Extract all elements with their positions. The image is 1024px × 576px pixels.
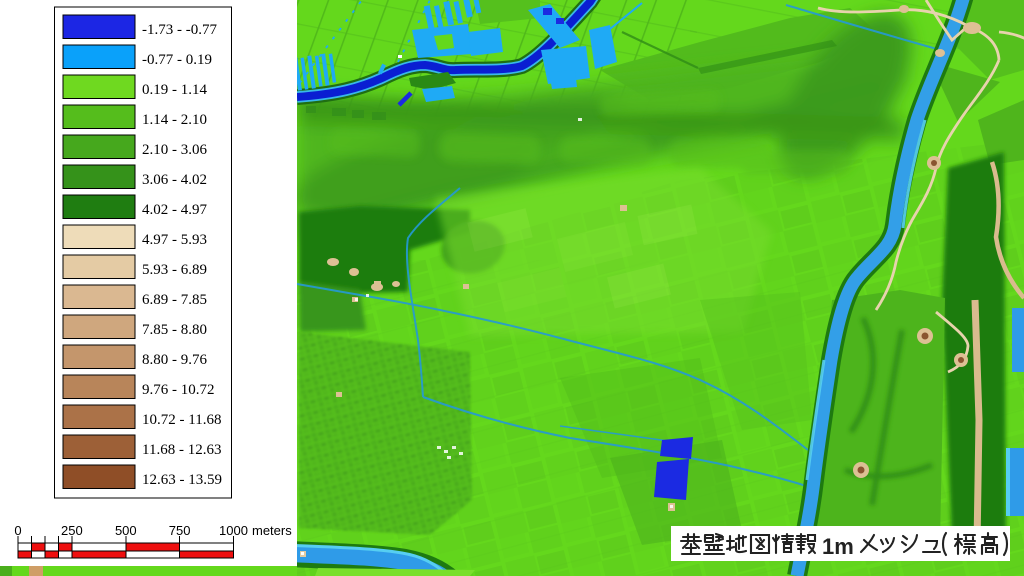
svg-text:8.80 - 9.76: 8.80 - 9.76 — [142, 352, 207, 368]
svg-text:4.97 - 5.93: 4.97 - 5.93 — [142, 232, 207, 248]
svg-text:5.93 - 6.89: 5.93 - 6.89 — [142, 262, 207, 278]
svg-text:3.06 - 4.02: 3.06 - 4.02 — [142, 172, 207, 188]
svg-text:-1.73 - -0.77: -1.73 - -0.77 — [142, 22, 217, 38]
svg-text:1m: 1m — [822, 534, 854, 559]
svg-text:12.63 - 13.59: 12.63 - 13.59 — [142, 472, 222, 488]
svg-text:0: 0 — [14, 523, 21, 538]
svg-text:250: 250 — [61, 523, 83, 538]
svg-text:500: 500 — [115, 523, 137, 538]
svg-text:10.72 - 11.68: 10.72 - 11.68 — [142, 412, 221, 428]
svg-text:1000: 1000 — [219, 523, 248, 538]
svg-text:4.02 - 4.97: 4.02 - 4.97 — [142, 202, 207, 218]
svg-text:9.76 - 10.72: 9.76 - 10.72 — [142, 382, 215, 398]
svg-text:2.10 - 3.06: 2.10 - 3.06 — [142, 142, 207, 158]
svg-text:6.89 - 7.85: 6.89 - 7.85 — [142, 292, 207, 308]
svg-text:7.85 - 8.80: 7.85 - 8.80 — [142, 322, 207, 338]
svg-text:0.19 - 1.14: 0.19 - 1.14 — [142, 82, 207, 98]
svg-text:750: 750 — [169, 523, 191, 538]
svg-text:1.14 - 2.10: 1.14 - 2.10 — [142, 112, 207, 128]
svg-text:-0.77 - 0.19: -0.77 - 0.19 — [142, 52, 212, 68]
svg-text:meters: meters — [252, 523, 292, 538]
svg-text:11.68 - 12.63: 11.68 - 12.63 — [142, 442, 221, 458]
